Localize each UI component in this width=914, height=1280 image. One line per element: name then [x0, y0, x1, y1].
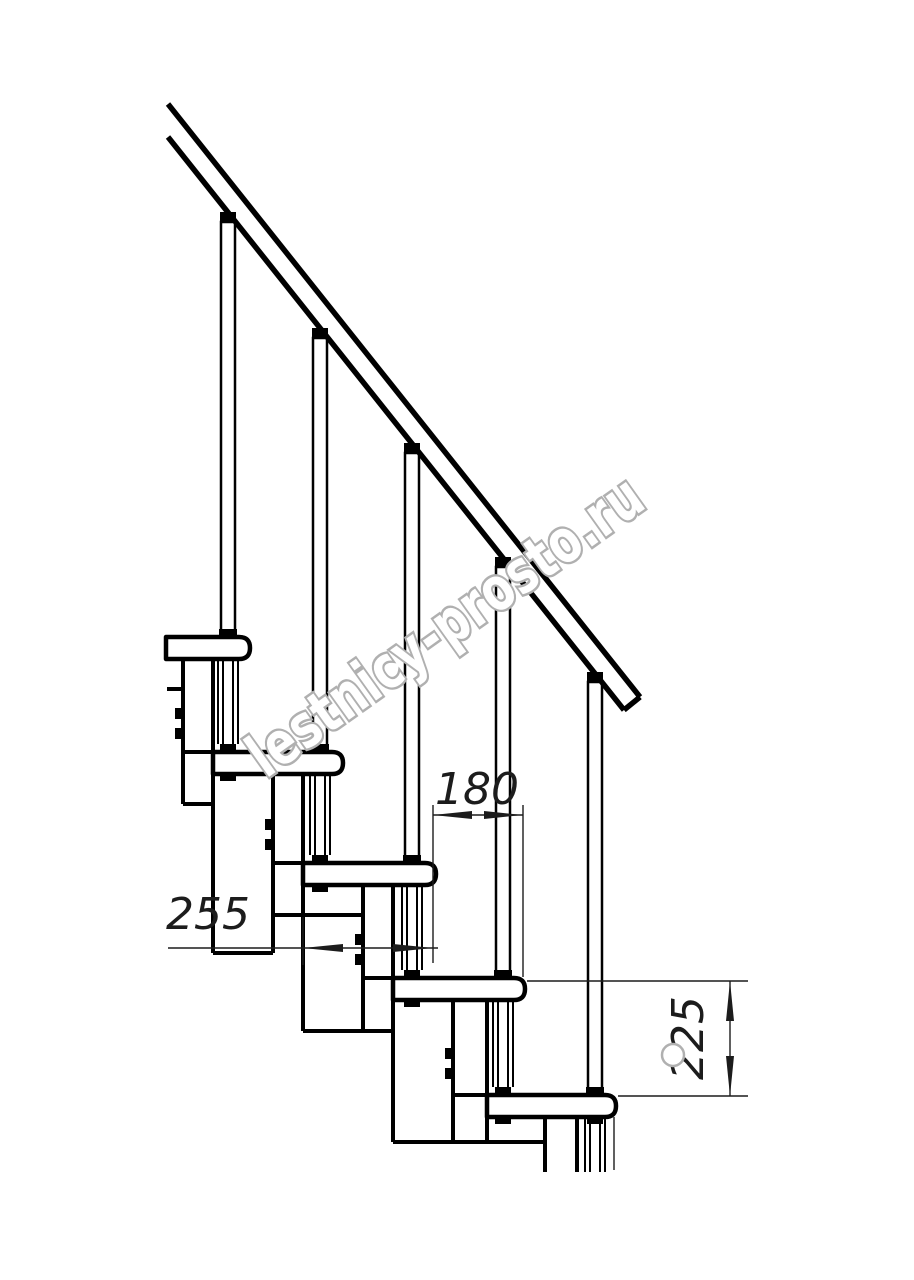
dimension-label-180: 180	[435, 764, 519, 815]
tread-5	[487, 1095, 616, 1117]
baluster-base-connector	[219, 629, 237, 637]
support-bracket-5-cropped	[545, 1117, 577, 1172]
baluster-base-connector	[403, 855, 421, 863]
bolt-icon	[175, 728, 183, 739]
baluster-1	[221, 222, 235, 637]
dimension-label-255: 255	[166, 889, 250, 940]
bolt-icon	[445, 1048, 453, 1059]
dimension-label-225: 225	[663, 996, 714, 1080]
bolt-icon	[175, 708, 183, 719]
bolt-icon	[265, 839, 273, 850]
baluster-5	[588, 682, 602, 1095]
dimension-225: 225	[527, 981, 748, 1170]
tread-3	[303, 863, 436, 885]
dim-arrow-down-icon	[726, 1056, 734, 1096]
support-bracket-4	[393, 1000, 543, 1144]
drawing-page: 180 255 225 lestnicy-prosto.ru	[0, 0, 914, 1280]
bolt-icon	[355, 934, 363, 945]
bolt-icon	[445, 1068, 453, 1079]
baluster-base-connector	[586, 1087, 604, 1095]
tread-4	[393, 978, 525, 1000]
staircase-technical-drawing: 180 255 225 lestnicy-prosto.ru	[0, 0, 914, 1280]
tread-1	[166, 637, 250, 659]
dim-arrow-up-icon	[726, 981, 734, 1021]
support-bracket-3	[303, 885, 395, 1142]
watermark-fragment	[662, 1044, 684, 1066]
dim-arrow-right-icon	[393, 944, 433, 952]
pipe-5-cropped	[585, 1117, 605, 1172]
baluster-base-connector	[494, 970, 512, 978]
dim-arrow-left-icon	[303, 944, 343, 952]
bolt-icon	[265, 819, 273, 830]
bolt-icon	[355, 954, 363, 965]
handrail-end-cap	[624, 697, 640, 710]
